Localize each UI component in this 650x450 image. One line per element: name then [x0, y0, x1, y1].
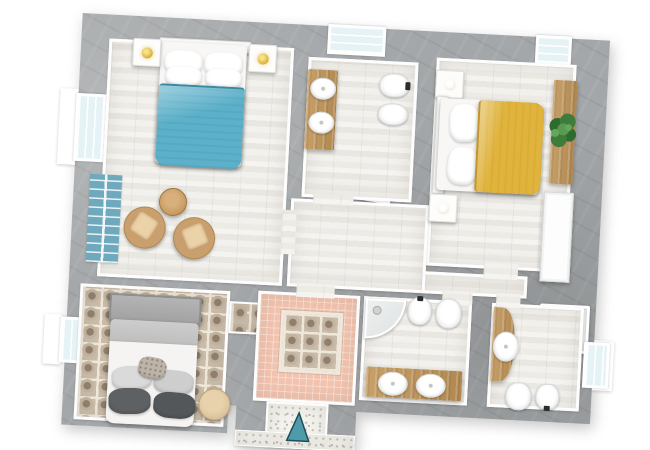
decorative-tile-inset: [278, 310, 343, 375]
corridor-tile-connector: [228, 301, 260, 335]
lamp-icon: [437, 202, 449, 214]
bidet-tap: [544, 406, 550, 411]
nightstand: [435, 70, 464, 99]
window-top-bedroom-yellow: [535, 35, 573, 67]
bidet: [377, 103, 408, 127]
nightstand: [248, 44, 277, 73]
doorway-bedroom-teal: [280, 210, 296, 255]
white-wardrobe: [539, 191, 574, 282]
window-glass: [76, 96, 103, 159]
lamp-icon: [444, 79, 456, 91]
doorway-bathroom-right: [496, 293, 521, 308]
window-left-bedroom-teal: [73, 93, 107, 162]
bidet-tap: [417, 296, 423, 301]
window-glass: [538, 38, 569, 64]
window-glass: [585, 345, 607, 386]
lamp-icon: [141, 47, 153, 59]
doorway-hall-pink: [296, 283, 335, 299]
shower-drain: [372, 306, 381, 315]
doorway-bathroom-top: [313, 193, 353, 205]
bed-duvet-yellow: [474, 100, 545, 195]
teal-runner-rug: [86, 174, 123, 264]
bed-pillow: [450, 104, 480, 142]
nightstand: [132, 38, 161, 67]
lamp-icon: [257, 53, 269, 65]
potted-plant-icon: [544, 107, 580, 155]
room-hallway: [287, 198, 429, 293]
toilet: [379, 73, 410, 99]
toilet-hinge: [405, 82, 410, 90]
window-glass: [330, 27, 383, 54]
window-right-bathroom: [582, 342, 610, 389]
entrance-arrow-icon: [285, 410, 313, 443]
nightstand: [428, 193, 457, 222]
floor-plan-rotated-canvas: [0, 0, 650, 450]
window-top-bathroom: [327, 24, 386, 57]
doorway-bedroom-yellow: [483, 262, 518, 280]
bed-duvet-teal: [155, 83, 245, 169]
floor-plan-image: [0, 0, 650, 450]
bed-pillow-dark: [109, 388, 151, 414]
